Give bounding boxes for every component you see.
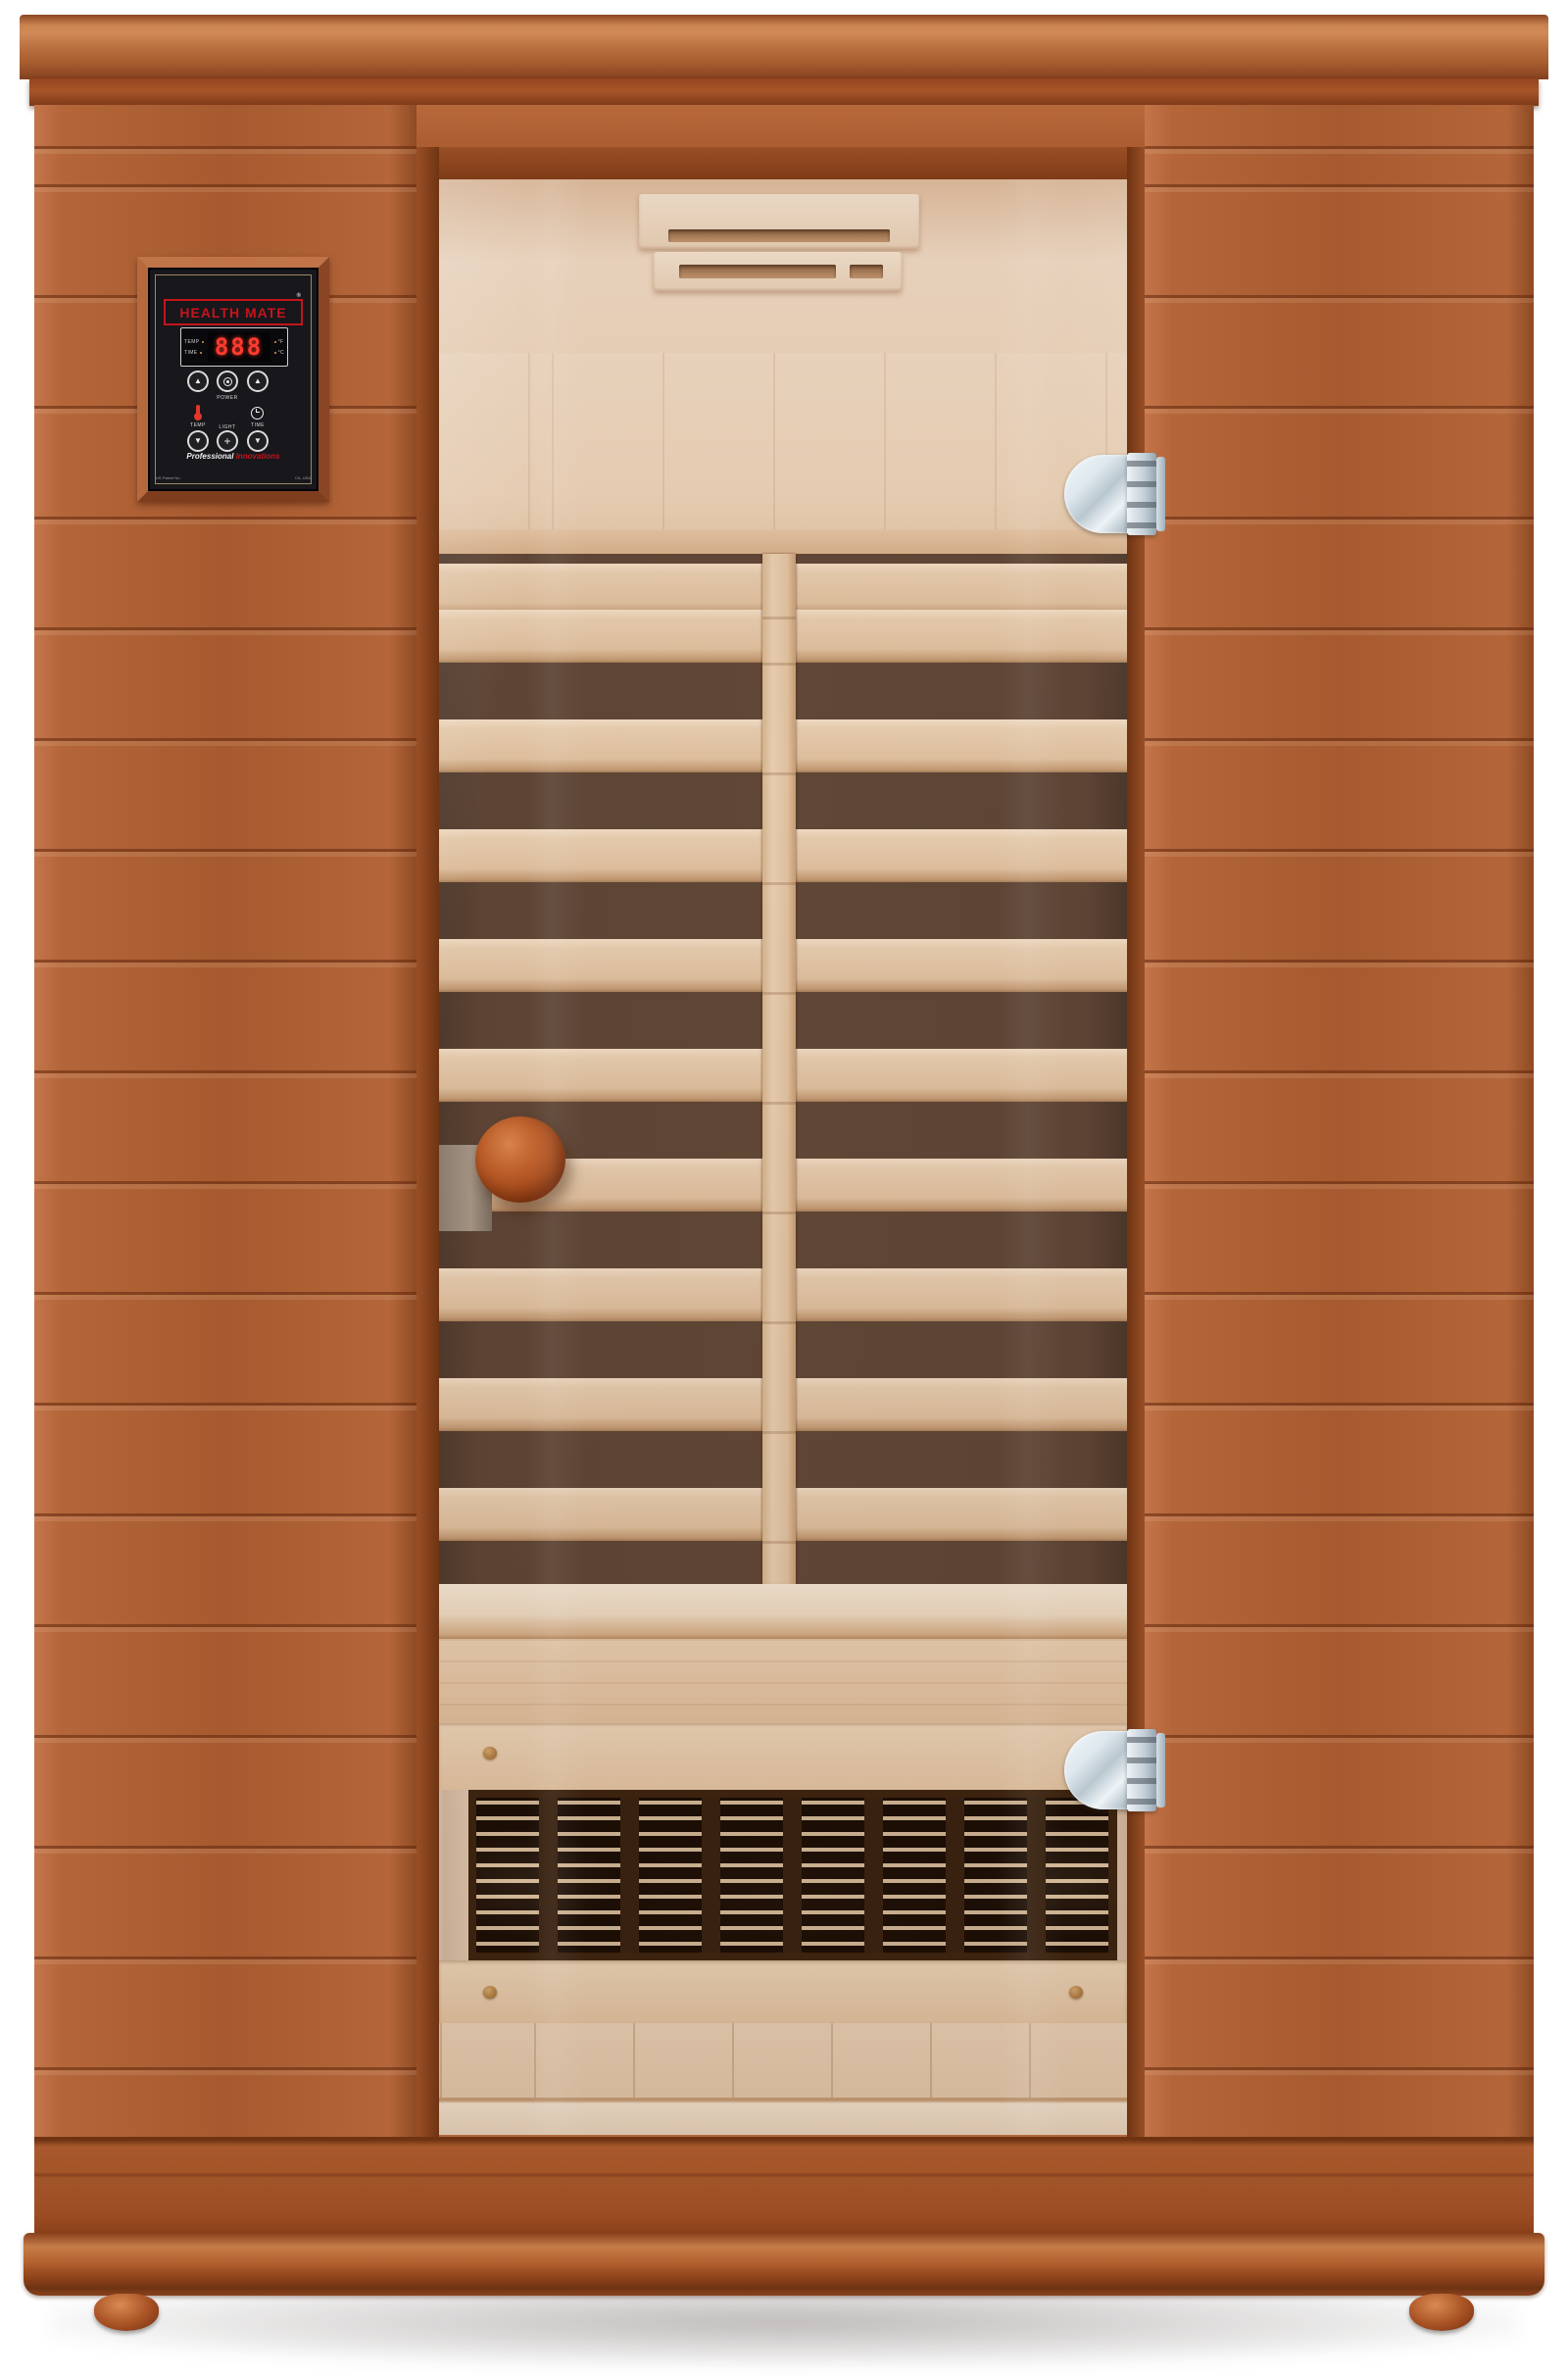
kickboard <box>439 1960 1127 2023</box>
wood-dowel-cap <box>483 1986 497 1999</box>
hinge-pin <box>1156 457 1165 531</box>
wood-dowel-cap <box>483 1747 497 1759</box>
fineprint-left: US Patent No. <box>156 476 181 481</box>
backrest-top-cap <box>439 529 1127 554</box>
door-frame-right <box>1127 147 1145 2137</box>
header-rail <box>416 105 1145 152</box>
bottom-rail <box>34 2137 1534 2235</box>
registered-mark: ® <box>297 293 302 299</box>
celsius-label: °C <box>274 350 284 356</box>
base-molding <box>24 2233 1544 2296</box>
tagline-red: Innovations <box>236 452 280 461</box>
clock-icon <box>251 407 264 420</box>
fixture-slot-small <box>850 265 883 278</box>
brand-name: HEALTH MATE <box>179 305 286 321</box>
tagline: Professional Innovations <box>148 452 318 461</box>
wood-dowel-cap <box>1069 1986 1083 1999</box>
door-hinge-top <box>1064 453 1170 535</box>
tagline-white: Professional <box>186 452 233 461</box>
temp-display-label: TEMP <box>184 339 204 345</box>
bench-lower-board <box>439 1723 1127 1790</box>
down-arrow-icon: ▼ <box>194 437 202 445</box>
power-icon <box>223 377 232 386</box>
power-label: POWER <box>208 395 247 401</box>
display-right-labels: °F °C <box>271 339 287 356</box>
ceiling-vent <box>639 194 919 249</box>
floor-shadow <box>49 2286 1519 2366</box>
fineprint-right: CA, USA <box>295 476 311 481</box>
bench-top <box>439 1584 1127 1639</box>
time-indicator <box>247 403 267 422</box>
temp-up-button: ▲ <box>187 371 209 392</box>
hinge-clamp <box>1127 453 1156 535</box>
fahrenheit-indicator-dot <box>274 341 276 343</box>
brand-plate: HEALTH MATE ® <box>164 299 303 325</box>
up-arrow-icon: ▲ <box>254 377 262 385</box>
power-button <box>217 371 238 392</box>
hinge-pin <box>1156 1733 1165 1807</box>
time-up-button: ▲ <box>247 371 269 392</box>
ceiling-light-fixture <box>654 252 902 291</box>
control-panel: HEALTH MATE ® TEMP TIME 888 °F °C <box>137 257 329 502</box>
front-heater-grille <box>468 1790 1117 1960</box>
time-down-button: ▼ <box>247 430 269 452</box>
hinge-plate <box>1064 1731 1129 1809</box>
hinge-clamp <box>1127 1729 1156 1811</box>
vent-slot <box>668 229 890 242</box>
display-left-labels: TEMP TIME <box>181 339 207 356</box>
plus-icon: + <box>223 435 230 447</box>
down-arrow-icon: ▼ <box>254 437 262 445</box>
door-frame-left <box>416 147 439 2137</box>
crown-molding <box>20 15 1548 79</box>
right-side-panel <box>1145 105 1534 2137</box>
sauna-product-photo: HEALTH MATE ® TEMP TIME 888 °F °C <box>0 0 1568 2376</box>
thermometer-icon <box>196 405 200 416</box>
door-frame-top <box>416 147 1145 179</box>
celsius-indicator-dot <box>274 352 276 354</box>
temp-indicator-dot <box>202 341 204 343</box>
temperature-time-display: TEMP TIME 888 °F °C <box>180 327 288 367</box>
bench-fascia <box>439 1639 1127 1723</box>
seven-segment-readout: 888 <box>208 332 270 362</box>
up-arrow-icon: ▲ <box>194 377 202 385</box>
time-indicator-dot <box>200 352 202 354</box>
glass-door <box>439 179 1127 2135</box>
floor-front-planks <box>439 2023 1127 2098</box>
light-button: + <box>217 430 238 452</box>
center-post <box>762 554 796 1588</box>
bun-foot-right <box>1409 2294 1474 2331</box>
door-hinge-bottom <box>1064 1729 1170 1811</box>
crown-molding-step <box>29 78 1539 106</box>
wooden-door-knob <box>475 1116 565 1203</box>
temp-down-button: ▼ <box>187 430 209 452</box>
fahrenheit-label: °F <box>274 339 284 345</box>
hinge-plate <box>1064 455 1129 533</box>
bun-foot-left <box>94 2294 159 2331</box>
door-threshold-board <box>439 2098 1127 2135</box>
time-display-label: TIME <box>184 350 204 356</box>
interior-back-wall <box>439 353 1127 554</box>
fixture-slot <box>679 265 836 278</box>
